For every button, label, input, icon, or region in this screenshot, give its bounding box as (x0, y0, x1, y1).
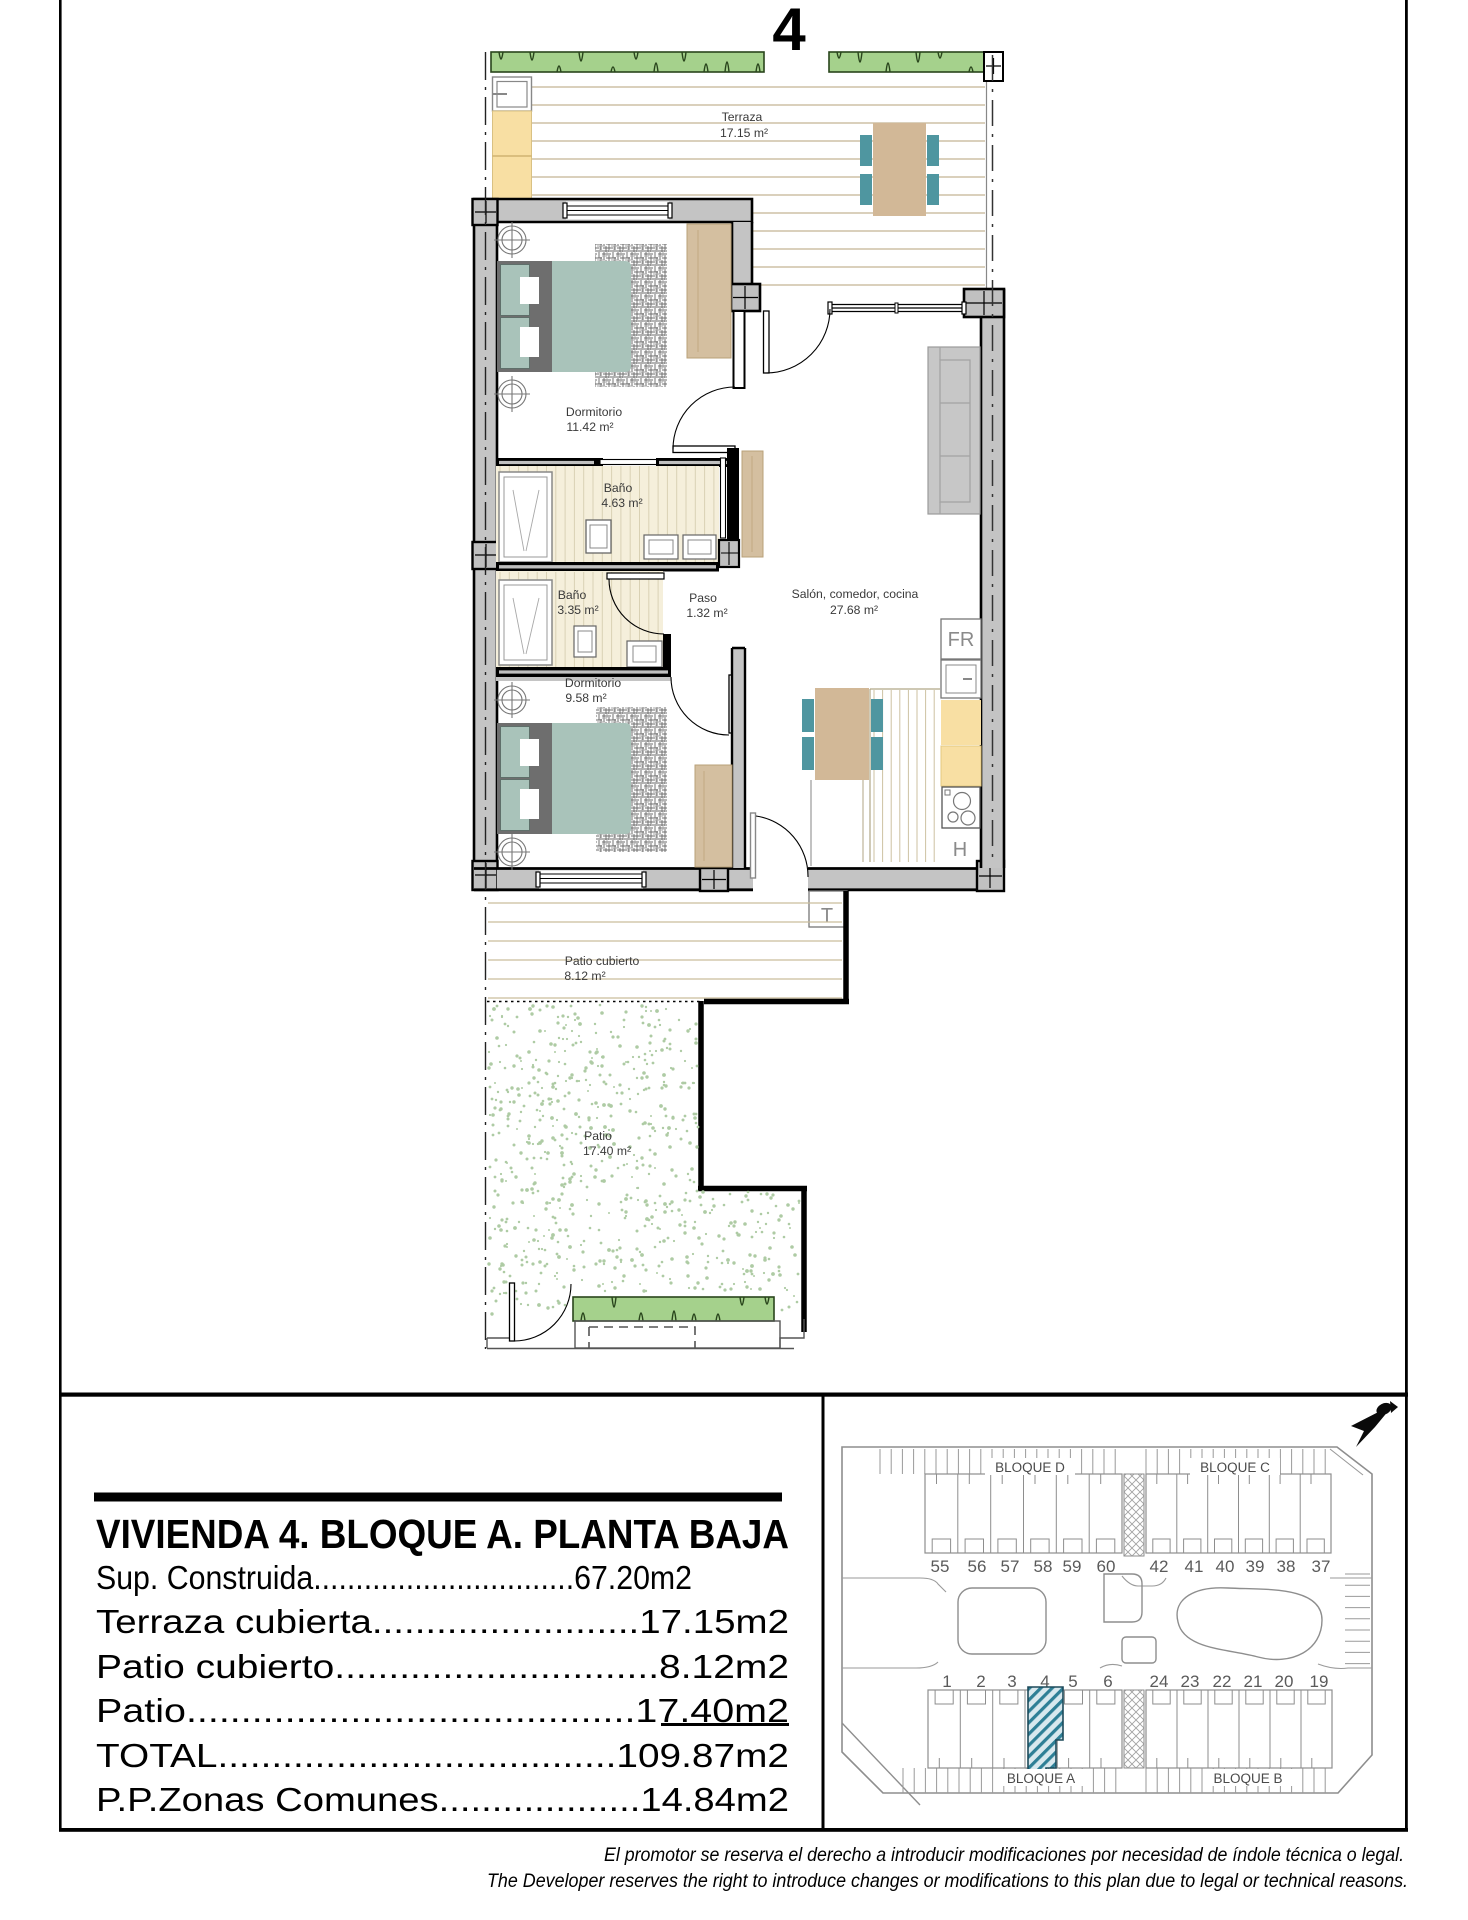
svg-text:T: T (821, 905, 833, 927)
svg-text:Dormitorio: Dormitorio (566, 405, 622, 419)
svg-text:4: 4 (772, 0, 806, 63)
svg-text:42: 42 (1150, 1557, 1169, 1576)
svg-text:P.P.Zonas Comunes.............: P.P.Zonas Comunes...................14.8… (96, 1781, 789, 1818)
svg-text:39: 39 (1246, 1557, 1265, 1576)
svg-text:El promotor se reserva el dere: El promotor se reserva el derecho a intr… (604, 1844, 1404, 1866)
svg-text:17.15 m²: 17.15 m² (720, 126, 768, 140)
svg-text:21: 21 (1244, 1672, 1263, 1691)
svg-text:5: 5 (1068, 1672, 1077, 1691)
svg-text:Patio: Patio (584, 1129, 612, 1143)
svg-text:Patio cubierto................: Patio cubierto..........................… (96, 1648, 789, 1685)
svg-text:37: 37 (1312, 1557, 1331, 1576)
svg-text:24: 24 (1150, 1672, 1169, 1691)
svg-text:Salón, comedor, cocina: Salón, comedor, cocina (792, 587, 919, 601)
svg-text:8.12 m²: 8.12 m² (564, 969, 605, 983)
svg-text:20: 20 (1275, 1672, 1294, 1691)
svg-text:11.42 m²: 11.42 m² (566, 420, 613, 434)
svg-text:VIVIENDA 4. BLOQUE A. PLANTA B: VIVIENDA 4. BLOQUE A. PLANTA BAJA (96, 1511, 789, 1557)
svg-text:38: 38 (1277, 1557, 1296, 1576)
svg-text:FR: FR (948, 629, 975, 651)
svg-text:9.58 m²: 9.58 m² (565, 691, 606, 705)
svg-text:Patio cubierto: Patio cubierto (565, 954, 640, 968)
svg-text:Terraza: Terraza (722, 110, 763, 124)
svg-text:1.32 m²: 1.32 m² (686, 606, 727, 620)
svg-text:41: 41 (1185, 1557, 1204, 1576)
svg-text:55: 55 (931, 1557, 950, 1576)
svg-text:BLOQUE B: BLOQUE B (1213, 1771, 1282, 1786)
svg-text:59: 59 (1063, 1557, 1082, 1576)
svg-text:19: 19 (1310, 1672, 1329, 1691)
svg-text:22: 22 (1213, 1672, 1232, 1691)
svg-text:Baño: Baño (604, 481, 633, 495)
svg-text:2: 2 (976, 1672, 985, 1691)
svg-text:The Developer reserves the rig: The Developer reserves the right to intr… (487, 1870, 1408, 1892)
svg-text:Dormitorio: Dormitorio (565, 676, 621, 690)
svg-text:60: 60 (1097, 1557, 1116, 1576)
svg-text:Sup. Construida...............: Sup. Construida.........................… (96, 1559, 692, 1596)
svg-text:3.35 m²: 3.35 m² (557, 603, 598, 617)
svg-text:40: 40 (1216, 1557, 1235, 1576)
svg-text:6: 6 (1103, 1672, 1112, 1691)
svg-text:27.68 m²: 27.68 m² (830, 603, 878, 617)
svg-text:23: 23 (1181, 1672, 1200, 1691)
svg-text:Paso: Paso (689, 591, 717, 605)
svg-text:TOTAL.........................: TOTAL...................................… (96, 1737, 789, 1774)
svg-text:58: 58 (1034, 1557, 1053, 1576)
svg-text:BLOQUE C: BLOQUE C (1200, 1460, 1270, 1475)
svg-text:3: 3 (1007, 1672, 1016, 1691)
svg-text:56: 56 (968, 1557, 987, 1576)
svg-text:17.40 m²: 17.40 m² (583, 1144, 631, 1158)
svg-text:H: H (953, 839, 967, 861)
svg-text:57: 57 (1001, 1557, 1020, 1576)
svg-text:4.63 m²: 4.63 m² (601, 496, 642, 510)
svg-text:Baño: Baño (558, 588, 587, 602)
svg-text:Terraza cubierta..............: Terraza cubierta........................… (96, 1603, 789, 1640)
svg-text:BLOQUE A: BLOQUE A (1007, 1771, 1075, 1786)
svg-text:1: 1 (942, 1672, 951, 1691)
svg-text:BLOQUE D: BLOQUE D (995, 1460, 1065, 1475)
